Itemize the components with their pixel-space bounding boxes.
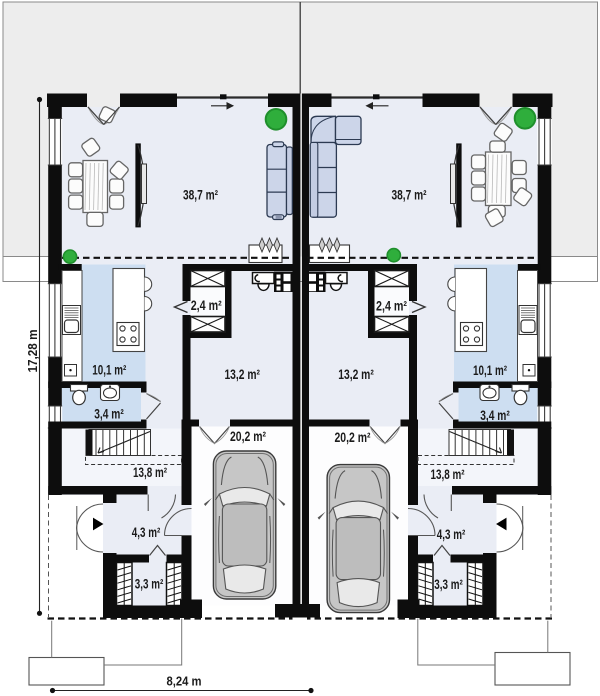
svg-text:13,8 m²: 13,8 m² [133, 464, 167, 480]
svg-text:2,4 m²: 2,4 m² [376, 298, 407, 314]
svg-text:38,7 m²: 38,7 m² [392, 187, 427, 203]
svg-text:8,24 m: 8,24 m [167, 674, 202, 689]
svg-text:13,2 m²: 13,2 m² [338, 366, 374, 382]
svg-text:3,3 m²: 3,3 m² [434, 576, 463, 592]
svg-text:38,7 m²: 38,7 m² [183, 187, 218, 203]
svg-text:10,1 m²: 10,1 m² [473, 362, 507, 378]
svg-text:17,28 m: 17,28 m [25, 330, 40, 373]
svg-text:4,3 m²: 4,3 m² [437, 526, 466, 542]
svg-text:20,2 m²: 20,2 m² [335, 429, 371, 445]
svg-text:2,4 m²: 2,4 m² [191, 297, 222, 313]
svg-text:3,4 m²: 3,4 m² [94, 406, 124, 422]
svg-text:13,2 m²: 13,2 m² [224, 366, 260, 382]
svg-text:4,3 m²: 4,3 m² [132, 524, 161, 540]
svg-text:3,3 m²: 3,3 m² [135, 576, 164, 592]
svg-text:13,8 m²: 13,8 m² [431, 466, 465, 482]
svg-text:20,2 m²: 20,2 m² [230, 428, 266, 444]
svg-text:3,4 m²: 3,4 m² [480, 407, 510, 423]
svg-text:10,1 m²: 10,1 m² [92, 362, 126, 378]
